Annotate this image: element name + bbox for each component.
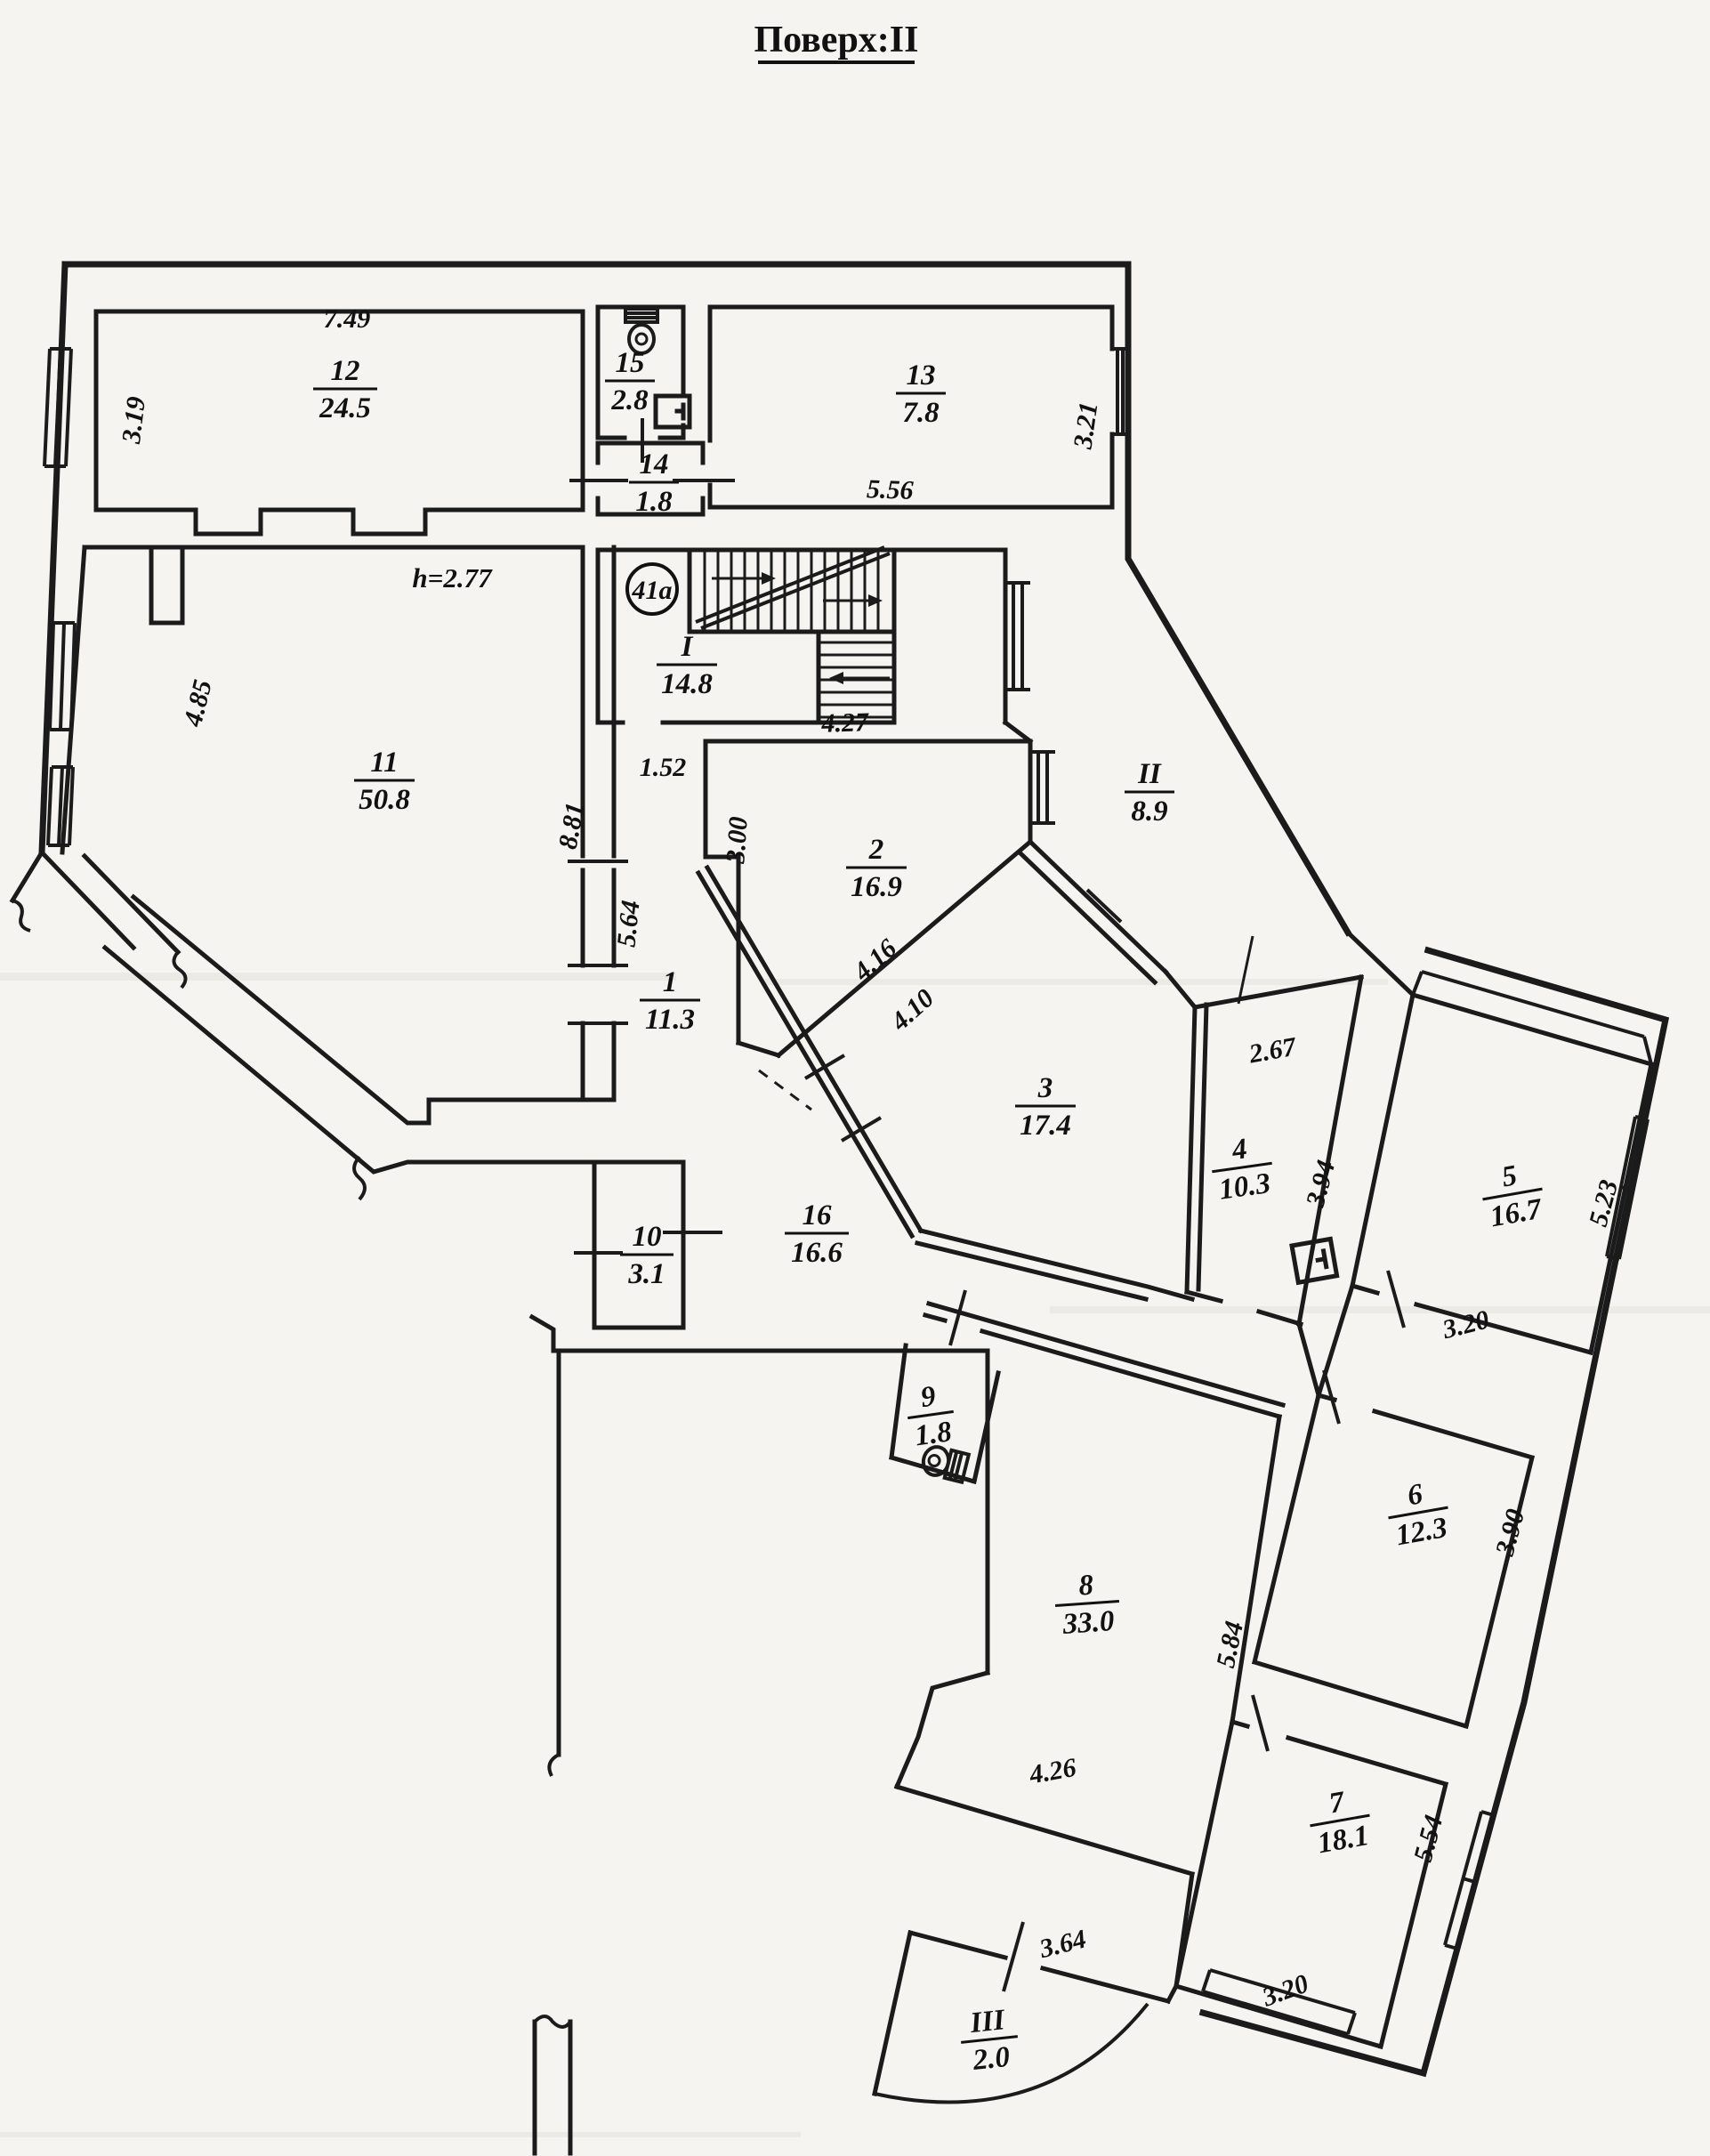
svg-text:4: 4 — [1230, 1133, 1249, 1167]
svg-text:16: 16 — [803, 1199, 833, 1231]
svg-text:12.3: 12.3 — [1393, 1512, 1449, 1552]
room-label-4: 410.3 — [1207, 1130, 1277, 1207]
height-note: h=2.77 — [412, 562, 493, 594]
stair-arrow-down — [829, 672, 890, 684]
svg-text:17.4: 17.4 — [1020, 1110, 1071, 1142]
svg-text:3.1: 3.1 — [627, 1258, 665, 1290]
svg-text:2.8: 2.8 — [610, 384, 648, 416]
svg-text:10: 10 — [633, 1221, 662, 1253]
room-label-12: 1224.5 — [313, 355, 377, 424]
svg-text:I: I — [681, 631, 694, 663]
room-label-13: 137.8 — [896, 359, 946, 429]
room-label-3: 317.4 — [1015, 1072, 1076, 1142]
room-label-I: I14.8 — [657, 631, 717, 700]
svg-text:16.7: 16.7 — [1488, 1193, 1545, 1234]
svg-text:1: 1 — [663, 966, 678, 998]
dim-2-67: 2.67 — [1246, 1032, 1299, 1070]
room-label-7: 718.1 — [1304, 1782, 1376, 1861]
svg-text:8.9: 8.9 — [1131, 795, 1167, 828]
room-label-6: 612.3 — [1383, 1474, 1455, 1554]
svg-text:III: III — [968, 2004, 1007, 2039]
page-title: Поверх:II — [754, 20, 919, 61]
dim-5-54: 5.54 — [1408, 1813, 1448, 1865]
walls-central — [698, 741, 1192, 1299]
svg-text:1.8: 1.8 — [913, 1416, 954, 1452]
walls-top-block — [44, 307, 1128, 534]
svg-text:14.8: 14.8 — [661, 668, 713, 700]
dim-3-64: 3.64 — [1036, 1924, 1089, 1964]
room-label-II: II8.9 — [1125, 758, 1174, 828]
walls-room11-vestibule — [12, 547, 628, 1199]
svg-text:18.1: 18.1 — [1315, 1820, 1371, 1860]
dim-5-64: 5.64 — [611, 899, 645, 949]
floor-plan-svg: Поверх:II 41a h=2.77 1224.5 152.8 141.8 … — [0, 0, 1710, 2156]
room-label-16: 1616.6 — [785, 1199, 849, 1269]
svg-text:8: 8 — [1077, 1570, 1094, 1603]
svg-text:14: 14 — [640, 448, 669, 480]
svg-text:16.6: 16.6 — [791, 1237, 843, 1269]
dim-5-56: 5.56 — [867, 474, 915, 505]
floor-plan-page: Поверх:II 41a h=2.77 1224.5 152.8 141.8 … — [0, 0, 1710, 2156]
dim-4-27: 4.27 — [820, 707, 870, 739]
svg-text:11: 11 — [370, 747, 398, 779]
room-label-8: 833.0 — [1053, 1568, 1121, 1642]
stair-tag: 41a h=2.77 — [412, 562, 677, 614]
title-block: Поверх:II — [754, 20, 919, 62]
svg-text:2: 2 — [868, 834, 884, 866]
svg-text:9: 9 — [919, 1380, 938, 1414]
dim-1-52: 1.52 — [640, 753, 687, 782]
svg-text:5: 5 — [1499, 1159, 1520, 1193]
svg-text:2.0: 2.0 — [971, 2041, 1012, 2077]
dim-4-26: 4.26 — [1027, 1753, 1078, 1790]
svg-text:13: 13 — [907, 359, 936, 392]
dim-7-49: 7.49 — [324, 304, 371, 334]
svg-text:24.5: 24.5 — [319, 392, 371, 424]
svg-text:1.8: 1.8 — [635, 486, 672, 518]
dim-3-20-room7: 3.20 — [1258, 1969, 1313, 2013]
svg-text:II: II — [1137, 758, 1162, 790]
dim-3-21: 3.21 — [1068, 400, 1103, 452]
room-label-11: 1150.8 — [354, 747, 415, 816]
svg-text:33.0: 33.0 — [1061, 1605, 1115, 1641]
dim-4-10: 4.10 — [884, 983, 940, 1037]
svg-text:7: 7 — [1327, 1786, 1348, 1821]
room-labels: 1224.5 152.8 141.8 137.8 I14.8 1150.8 21… — [313, 347, 1548, 2078]
room-label-9: 91.8 — [903, 1378, 958, 1453]
dim-4-85: 4.85 — [178, 677, 218, 731]
svg-text:7.8: 7.8 — [902, 397, 939, 429]
door-swing-arc — [875, 2004, 1148, 2103]
svg-text:15: 15 — [616, 347, 645, 379]
svg-text:6: 6 — [1405, 1478, 1425, 1512]
room-label-14: 141.8 — [629, 448, 679, 518]
svg-text:3: 3 — [1037, 1072, 1053, 1104]
svg-text:10.3: 10.3 — [1217, 1167, 1272, 1207]
walls-outer — [42, 264, 1666, 2073]
room-label-15: 152.8 — [605, 347, 655, 416]
dim-3-94: 3.94 — [1300, 1158, 1341, 1211]
dim-3-00: 3.00 — [721, 816, 754, 866]
walls-rooms-3-4 — [1166, 936, 1361, 1324]
room-label-5: 516.7 — [1477, 1156, 1549, 1235]
svg-text:16.9: 16.9 — [851, 871, 902, 903]
stair-tag-label: 41a — [632, 576, 673, 605]
svg-text:50.8: 50.8 — [359, 784, 410, 816]
dim-3-90: 3.90 — [1489, 1506, 1530, 1560]
dim-3-19: 3.19 — [117, 395, 151, 446]
room-label-2: 216.9 — [846, 834, 907, 903]
svg-text:12: 12 — [331, 355, 360, 387]
svg-text:11.3: 11.3 — [645, 1004, 695, 1036]
room-label-III: III2.0 — [957, 2003, 1021, 2078]
